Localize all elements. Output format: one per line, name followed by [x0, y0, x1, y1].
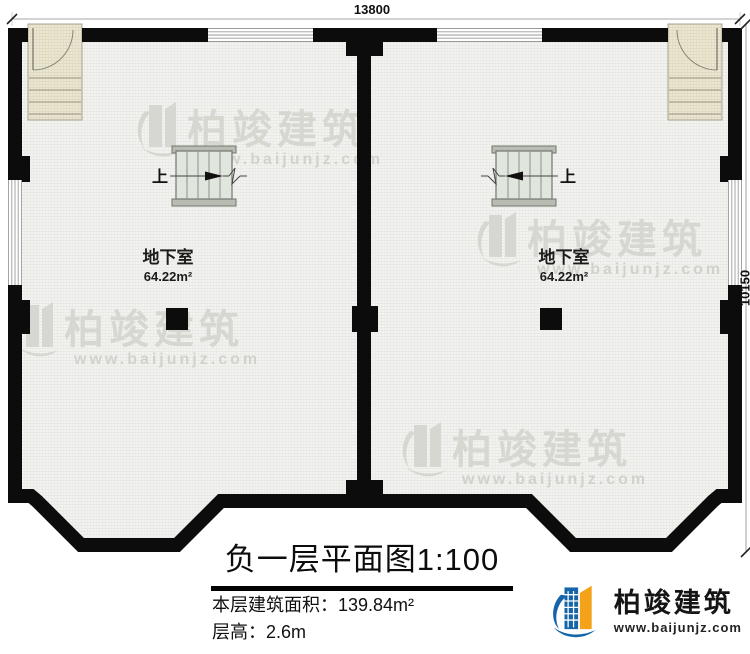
- wall: [542, 28, 668, 42]
- watermark-text: 柏竣建筑: [452, 428, 632, 472]
- pilaster: [720, 300, 728, 334]
- watermark-url: www.baijunjz.com: [461, 471, 648, 488]
- room-area: 64.22m²: [144, 269, 193, 284]
- floor-area-info: 本层建筑面积：139.84m²: [212, 592, 414, 619]
- floor-height-info: 层高：2.6m: [212, 619, 414, 646]
- floor-plan-drawing: 柏竣建筑 www.baijunjz.com 柏竣建筑 www.baijunjz.…: [0, 0, 750, 560]
- column: [540, 308, 562, 330]
- window-top-left: [208, 28, 313, 42]
- room-label: 地下室: [539, 247, 590, 267]
- wall: [8, 285, 22, 473]
- window-left: [8, 180, 22, 285]
- stair-up-label: 上: [560, 168, 576, 186]
- wall-junction: [346, 480, 383, 496]
- wall-middle: [357, 42, 371, 494]
- wall: [82, 28, 208, 42]
- pilaster: [22, 300, 30, 334]
- pilaster: [22, 156, 30, 182]
- pilaster: [720, 156, 728, 182]
- brand-logo: 柏竣建筑 www.baijunjz.com: [550, 582, 742, 640]
- dimension-height-label: 10150: [738, 270, 750, 306]
- page-title: 负一层平面图1:100: [211, 534, 514, 591]
- floorplan-page: 柏竣建筑 www.baijunjz.com 柏竣建筑 www.baijunjz.…: [0, 0, 750, 654]
- entry-stairwell-right: [668, 24, 722, 120]
- room-label: 地下室: [143, 247, 194, 267]
- watermark-text: 柏竣建筑: [187, 108, 367, 152]
- floor-info: 本层建筑面积：139.84m² 层高：2.6m: [212, 592, 414, 646]
- wall: [728, 28, 742, 180]
- dimension-top: 13800: [7, 2, 745, 26]
- dimension-width-label: 13800: [354, 2, 390, 17]
- wall: [728, 285, 742, 473]
- stair-up-label: 上: [152, 168, 168, 186]
- watermark-text: 柏竣建筑: [64, 308, 244, 352]
- wall-junction: [346, 42, 383, 56]
- entry-stairwell-left: [28, 24, 82, 120]
- brand-name: 柏竣建筑: [614, 588, 742, 618]
- wall: [313, 28, 437, 42]
- room-area: 64.22m²: [540, 269, 589, 284]
- brand-url: www.baijunjz.com: [614, 620, 742, 635]
- brand-logo-icon: [550, 582, 608, 640]
- wall: [8, 28, 22, 180]
- watermark-url: www.baijunjz.com: [73, 351, 260, 368]
- column: [352, 306, 378, 332]
- window-top-right: [437, 28, 542, 42]
- column: [166, 308, 188, 330]
- window-right: [728, 180, 742, 285]
- brand-text: 柏竣建筑 www.baijunjz.com: [614, 588, 742, 635]
